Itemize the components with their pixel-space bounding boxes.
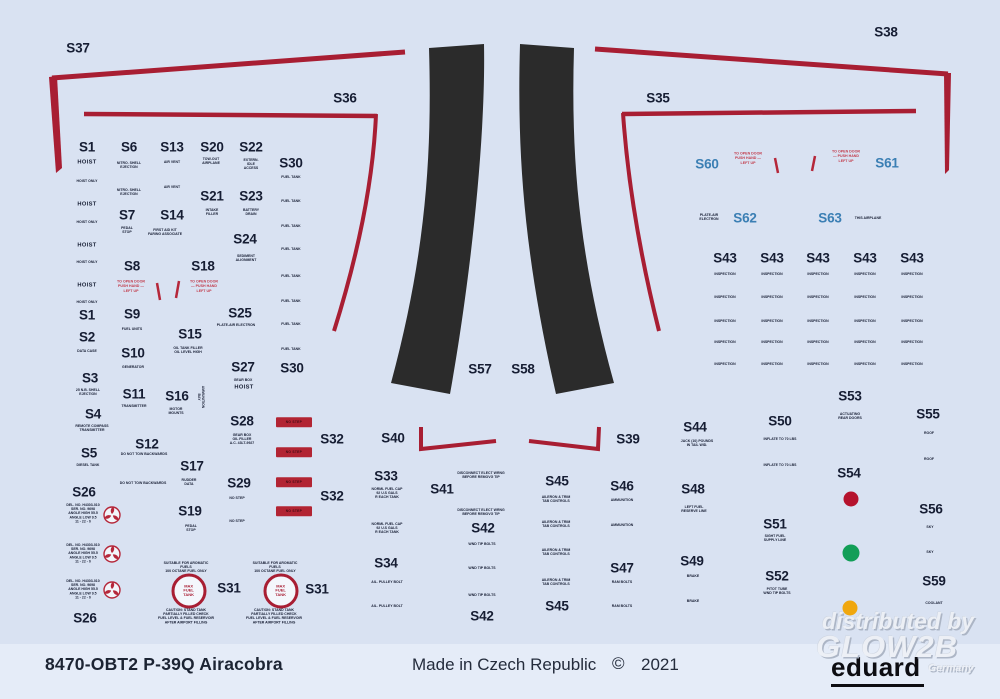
stencil-micro-text: THIS AIRPLANE [855,217,882,221]
stencil-label: S19 [178,504,201,519]
no-step-text: NO STEP [286,480,302,483]
stencil-label: S48 [681,482,704,497]
stencil-label: S9 [124,307,140,322]
inspection-stamp: INSPECTION [901,296,922,300]
made-in-text: Made in Czech Republic [412,655,596,675]
stencil-label: S57 [468,362,491,377]
stencil-micro-text: PLATE-AIR ELECTRON [699,214,718,222]
stencil-label: S45 [545,599,568,614]
stencil-label: S2 [79,330,95,345]
stencil-label: S51 [763,517,786,532]
stencil-micro-text: ROOF [924,458,934,462]
stencil-label: S25 [228,306,251,321]
inspection-stamp: INSPECTION [854,363,875,367]
inspection-stamp: INSPECTION [807,341,828,345]
stencil-micro-text: BRAKE [687,575,699,579]
stencil-micro-text: ROOF [924,432,934,436]
inspection-stamp: INSPECTION [901,363,922,367]
no-step-decal: NO STEP [276,506,312,516]
max-fuel-tank-text: MAX FUEL TANK [276,585,287,597]
stencil-label: S59 [922,574,945,589]
stencil-label: S36 [333,91,356,106]
stencil-micro-text: TOW-OUT AIRPLANE [202,158,220,166]
stencil-micro-text: MOTOR MOUNTS [168,408,183,416]
stencil-micro-text: AIR VENT [164,186,180,190]
stencil-micro-text: AILERON & TRIM TAB CONTROLS [542,521,571,529]
stencil-label: S4 [85,407,101,422]
stencil-micro-text: SIGHT FUEL SUPPLY LINE [764,535,786,543]
stencil-micro-text: SUITABLE FOR AROMATIC FUELS 100 OCTANE F… [253,562,298,575]
stencil-label: S58 [511,362,534,377]
stencil-label: S54 [837,466,860,481]
stencil-micro-text: DISCONNECT ELECT WRNG BEFORE REMOVG TIP [457,509,504,517]
inspection-stamp: INSPECTION [807,363,828,367]
stencil-micro-text: GENERATOR [122,366,144,370]
stencil-micro-text: AIR VENT [164,161,180,165]
stencil-micro-text: DATA CASE [77,350,97,354]
propeller-logo-icons [104,507,120,598]
stencil-micro-text: FIRST AID KIT FARING ASSOCIATE [148,229,182,237]
inspection-stamp: INSPECTION [761,273,782,277]
stencil-micro-text: HOIST ONLY [77,221,98,225]
stencil-micro-text: DEL. NO. H4303-010 SER. NO. 9698 ANGLE H… [66,580,99,601]
stencil-label: S30 [279,156,302,171]
stencil-label: S49 [680,554,703,569]
stencil-micro-text: GEAR BOX OIL FILLER A.C. 43LT-9927 [230,434,255,447]
stencil-label: S16 [165,389,188,404]
stencil-micro-text: HOIST ONLY [77,180,98,184]
stencil-label: S8 [124,259,140,274]
stencil-label: S32 [320,489,343,504]
stencil-label: S47 [610,561,633,576]
stencil-label: S55 [916,407,939,422]
stencil-label: S11 [123,387,146,402]
inspection-stamp: INSPECTION [854,341,875,345]
stencil-label: S62 [733,211,756,226]
stencil-label: S21 [200,189,223,204]
inspection-stamp: INSPECTION [807,273,828,277]
stencil-micro-text: NO STEP [229,520,244,524]
stencil-label: S38 [874,25,897,40]
watermark-germany: Germany [928,662,974,674]
stencil-label: S29 [227,476,250,491]
stencil-micro-text: AILERON & TRIM TAB CONTROLS [542,496,571,504]
stencil-micro-text: AMMUNITION [611,499,634,503]
color-dot-decal [844,492,859,507]
door-instruction-text: TO OPEN DOOR PUSH HAND — LEFT UP [734,152,762,166]
copyright-symbol: © [612,654,625,674]
stencil-small-text: HOIST [77,282,96,288]
door-instruction-text: TO OPEN DOOR — PUSH HAND LEFT UP [190,280,218,294]
stencil-label: S30 [280,361,303,376]
max-fuel-tank-badge: MAX FUEL TANK [172,574,207,609]
max-fuel-tank-badge: MAX FUEL TANK [264,574,299,609]
stencil-micro-text: HOIST ONLY [77,261,98,265]
inspection-stamp: INSPECTION [807,320,828,324]
stencil-label: S26 [72,485,95,500]
inspection-stamp: INSPECTION [761,320,782,324]
stencil-micro-text: CAUTION: STAND TANK PARTIALLY FILLED CHE… [158,609,214,626]
no-step-text: NO STEP [286,420,302,423]
watermark-glow2b: GLOW2B [816,629,958,665]
stencil-label: S35 [646,91,669,106]
inspection-stamp: INSPECTION [901,341,922,345]
stencil-micro-text: NORML FUEL CAP 92 U.S GALS R EACH TANK [371,488,402,501]
stencil-label: S42 [470,609,493,624]
stencil-label: S15 [178,327,201,342]
inspection-stamp: INSPECTION [854,273,875,277]
stencil-micro-text: RAM BOLTS [612,581,632,585]
stencil-label: S18 [191,259,214,274]
stencil-micro-text: SKY [926,551,933,555]
stencil-label: S39 [616,432,639,447]
stencil-micro-text: FUEL TANK [281,225,300,229]
stencil-micro-text: WND TIP BOLTS [468,594,495,598]
stencil-label: S45 [545,474,568,489]
stencil-label: S6 [121,140,137,155]
inspection-stamp: INSPECTION [901,320,922,324]
stencil-label: S43 [713,251,736,266]
stencil-label: S43 [806,251,829,266]
max-fuel-tank-text: MAX FUEL TANK [184,585,195,597]
stencil-label: S22 [239,140,262,155]
stencil-label: S26 [73,611,96,626]
stencil-micro-text: FUEL TANK [281,348,300,352]
product-code: 8470-OBT2 P-39Q Airacobra [45,654,283,675]
stencil-label: S27 [231,360,254,375]
stencil-micro-text: NO STEP [229,497,244,501]
stencil-label: S40 [381,431,404,446]
stencil-small-text: HOIST [234,384,253,390]
stencil-label: S28 [230,414,253,429]
stencil-micro-text: SKY [926,526,933,530]
inspection-stamp: INSPECTION [714,320,735,324]
door-instruction-text: TO OPEN DOOR PUSH HAND — LEFT UP [117,280,145,294]
stencil-label: S20 [200,140,223,155]
stencil-micro-text: INTAKE FILLER [206,209,219,217]
stencil-label: S50 [768,414,791,429]
stencil-label: S1 [79,308,95,323]
stencil-label: S7 [119,208,135,223]
stencil-micro-text: WND TIP BOLTS [468,567,495,571]
inspection-stamp: INSPECTION [854,320,875,324]
stencil-label: S41 [430,482,453,497]
stencil-label: S42 [471,521,494,536]
stencil-micro-text: NITRO. SHELL EJECTION [117,189,141,197]
stencil-micro-text: GEAR BOX [234,379,253,383]
stencil-label: S31 [217,581,240,596]
stencil-micro-text: TRANSMITTER [122,405,147,409]
stencil-label: S34 [374,556,397,571]
stencil-micro-text: 25 N.B. SHELL EJECTION [76,389,100,397]
stencil-label: S23 [239,189,262,204]
stencil-micro-text: DEL. NO. H4303-010 SER. NO. 9698 ANGLE H… [66,504,99,525]
stencil-micro-text: AILERON & TRIM TAB CONTROLS [542,549,571,557]
stencil-micro-text: DIESEL TANK [77,464,100,468]
stencil-micro-text: LEFT FUEL RESERVE LINE [681,506,706,514]
stencil-micro-text: DEL. NO. H4303-010 SER. NO. 9698 ANGLE H… [66,544,99,565]
stencil-micro-text: FUEL TANK [281,200,300,204]
stencil-micro-text: INFLATE TO 70 LBS [764,438,797,442]
stencil-small-text: HOIST [77,201,96,207]
stencil-label: S1 [79,140,95,155]
door-tick-marks [157,156,815,300]
stencil-micro-text: AMMUNITION [611,524,634,528]
stencil-micro-text: DISCONNECT ELECT WRNG BEFORE REMOVG TIP [457,472,504,480]
stencil-label: S43 [900,251,923,266]
no-step-text: NO STEP [286,450,302,453]
anti-glare-panel-left [391,44,484,394]
stencil-micro-text: BRAKE [687,600,699,604]
stencil-label: S43 [760,251,783,266]
stencil-micro-text: FUEL TANK [281,300,300,304]
stencil-micro-text: CAUTION: STAND TANK PARTIALLY FILLED CHE… [246,609,302,626]
decal-sheet: 8470-OBT2 P-39Q Airacobra Made in Czech … [0,0,1000,699]
stencil-small-text: HOIST [77,159,96,165]
stencil-label: S14 [160,208,183,223]
stencil-label: S10 [121,346,144,361]
stencil-micro-text: FUEL UNITS [122,328,142,332]
stencil-micro-text: RAM BOLTS [612,605,632,609]
stencil-label: S31 [305,582,328,597]
inspection-stamp: INSPECTION [807,296,828,300]
stencil-label: S44 [683,420,706,435]
inspection-stamp: INSPECTION [761,296,782,300]
no-step-decal: NO STEP [276,447,312,457]
stencil-label: S32 [320,432,343,447]
stencil-micro-text: AILERON & TRIM TAB CONTROLS [542,579,571,587]
stencil-label: S60 [695,157,718,172]
inspection-stamp: INSPECTION [714,273,735,277]
stencil-label: S17 [180,459,203,474]
stencil-micro-text: RUDDER DATA [182,479,197,487]
stencil-label: S63 [818,211,841,226]
color-dot-decal [843,545,860,562]
stencil-micro-text: FUEL TANK [281,248,300,252]
stencil-label: S43 [853,251,876,266]
stencil-small-text: HOIST [77,242,96,248]
stencil-micro-text: SEDIMENT ALIGNMENT [236,255,257,263]
inspection-stamp: INSPECTION [901,273,922,277]
no-step-decal: NO STEP [276,417,312,427]
stencil-label: S12 [135,437,158,452]
stencil-label: S56 [919,502,942,517]
stencil-label: S3 [82,371,98,386]
stencil-micro-text: PEDAL STOP [121,227,133,235]
stencil-micro-text: PITOT TUBE WND TIP BOLTS [763,588,790,596]
stencil-micro-text: AIL. PULLEY BOLT [371,605,402,609]
stencil-micro-text: JACK (10) POUNDS IN TAIL WID. [681,440,713,448]
copyright-year: 2021 [641,655,679,675]
stencil-micro-text: COOLANT [925,602,942,606]
door-instruction-text: TO OPEN DOOR — PUSH HAND LEFT UP [832,150,860,164]
stencil-label: S37 [66,41,89,56]
stencil-micro-text: FUEL TANK [281,275,300,279]
sheet-graphics [0,0,1000,699]
inspection-stamp: INSPECTION [761,363,782,367]
stencil-label: S33 [374,469,397,484]
stencil-label: S5 [81,446,97,461]
stencil-label: S52 [765,569,788,584]
stencil-micro-text: DO NOT TOW BACKWARDS [121,453,168,457]
stencil-micro-text: FUEL TANK [281,176,300,180]
inspection-stamp: INSPECTION [854,296,875,300]
stencil-micro-text: WND TIP BOLTS [468,543,495,547]
stencil-micro-text: NITRO. SHELL EJECTION [117,162,141,170]
inspection-stamp: INSPECTION [761,341,782,345]
stencil-micro-text: ACTUATING REAR DOORS [838,413,862,421]
stencil-label: S53 [838,389,861,404]
stencil-micro-text: INFLATE TO 70 LBS [764,464,797,468]
stencil-micro-text: OIL TANK FILLER OIL LEVEL HIGH [173,347,202,355]
stencil-micro-text: PLATE-AIR ELECTRON [217,324,255,328]
stencil-micro-text: FUEL TANK [281,323,300,327]
stencil-micro-text: DO NOT TOW BACKWARDS [120,482,167,486]
stencil-micro-text: BATTERY DRAIN [243,209,259,217]
stencil-label: S24 [233,232,256,247]
stencil-label: S13 [160,140,183,155]
stencil-micro-text: AMMUNITION BAY [196,386,204,409]
stencil-micro-text: NORML FUEL CAP 92 U.S GALS R EACH TANK [371,523,402,536]
stencil-micro-text: HOIST ONLY [77,301,98,305]
stencil-micro-text: SUITABLE FOR AROMATIC FUELS 100 OCTANE F… [164,562,209,575]
stencil-micro-text: AIL. PULLEY BOLT [371,581,402,585]
stencil-label: S46 [610,479,633,494]
anti-glare-panel-right [519,44,614,394]
inspection-stamp: INSPECTION [714,296,735,300]
no-step-decal: NO STEP [276,477,312,487]
stencil-micro-text: EXTERN. IDLE ACCESS [243,159,258,172]
inspection-stamp: INSPECTION [714,341,735,345]
stencil-micro-text: PEDAL STOP [185,525,197,533]
no-step-text: NO STEP [286,509,302,512]
stencil-label: S61 [875,156,898,171]
inspection-stamp: INSPECTION [714,363,735,367]
stencil-micro-text: REMOTE COMPASS TRANSMITTER [75,425,108,433]
